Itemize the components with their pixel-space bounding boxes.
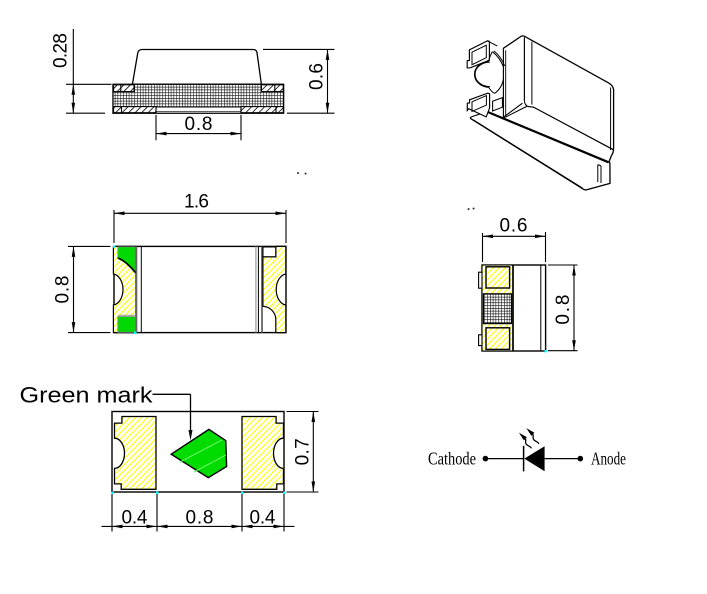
svg-text:0.6: 0.6 — [307, 63, 328, 90]
svg-text:0.8: 0.8 — [186, 508, 214, 529]
svg-text:Green mark: Green mark — [20, 383, 154, 408]
svg-text:Anode: Anode — [591, 449, 626, 469]
svg-text:Cathode: Cathode — [428, 449, 476, 469]
svg-text:0.4: 0.4 — [122, 508, 148, 529]
svg-text:0.8: 0.8 — [53, 276, 74, 304]
svg-text:0.4: 0.4 — [250, 508, 276, 529]
svg-text:0.7: 0.7 — [293, 438, 314, 465]
svg-text:0.28: 0.28 — [51, 33, 72, 68]
svg-text:0.6: 0.6 — [500, 216, 528, 237]
svg-text:1.6: 1.6 — [184, 192, 209, 213]
svg-text:0.8: 0.8 — [553, 295, 574, 325]
svg-text:0.8: 0.8 — [185, 114, 213, 135]
